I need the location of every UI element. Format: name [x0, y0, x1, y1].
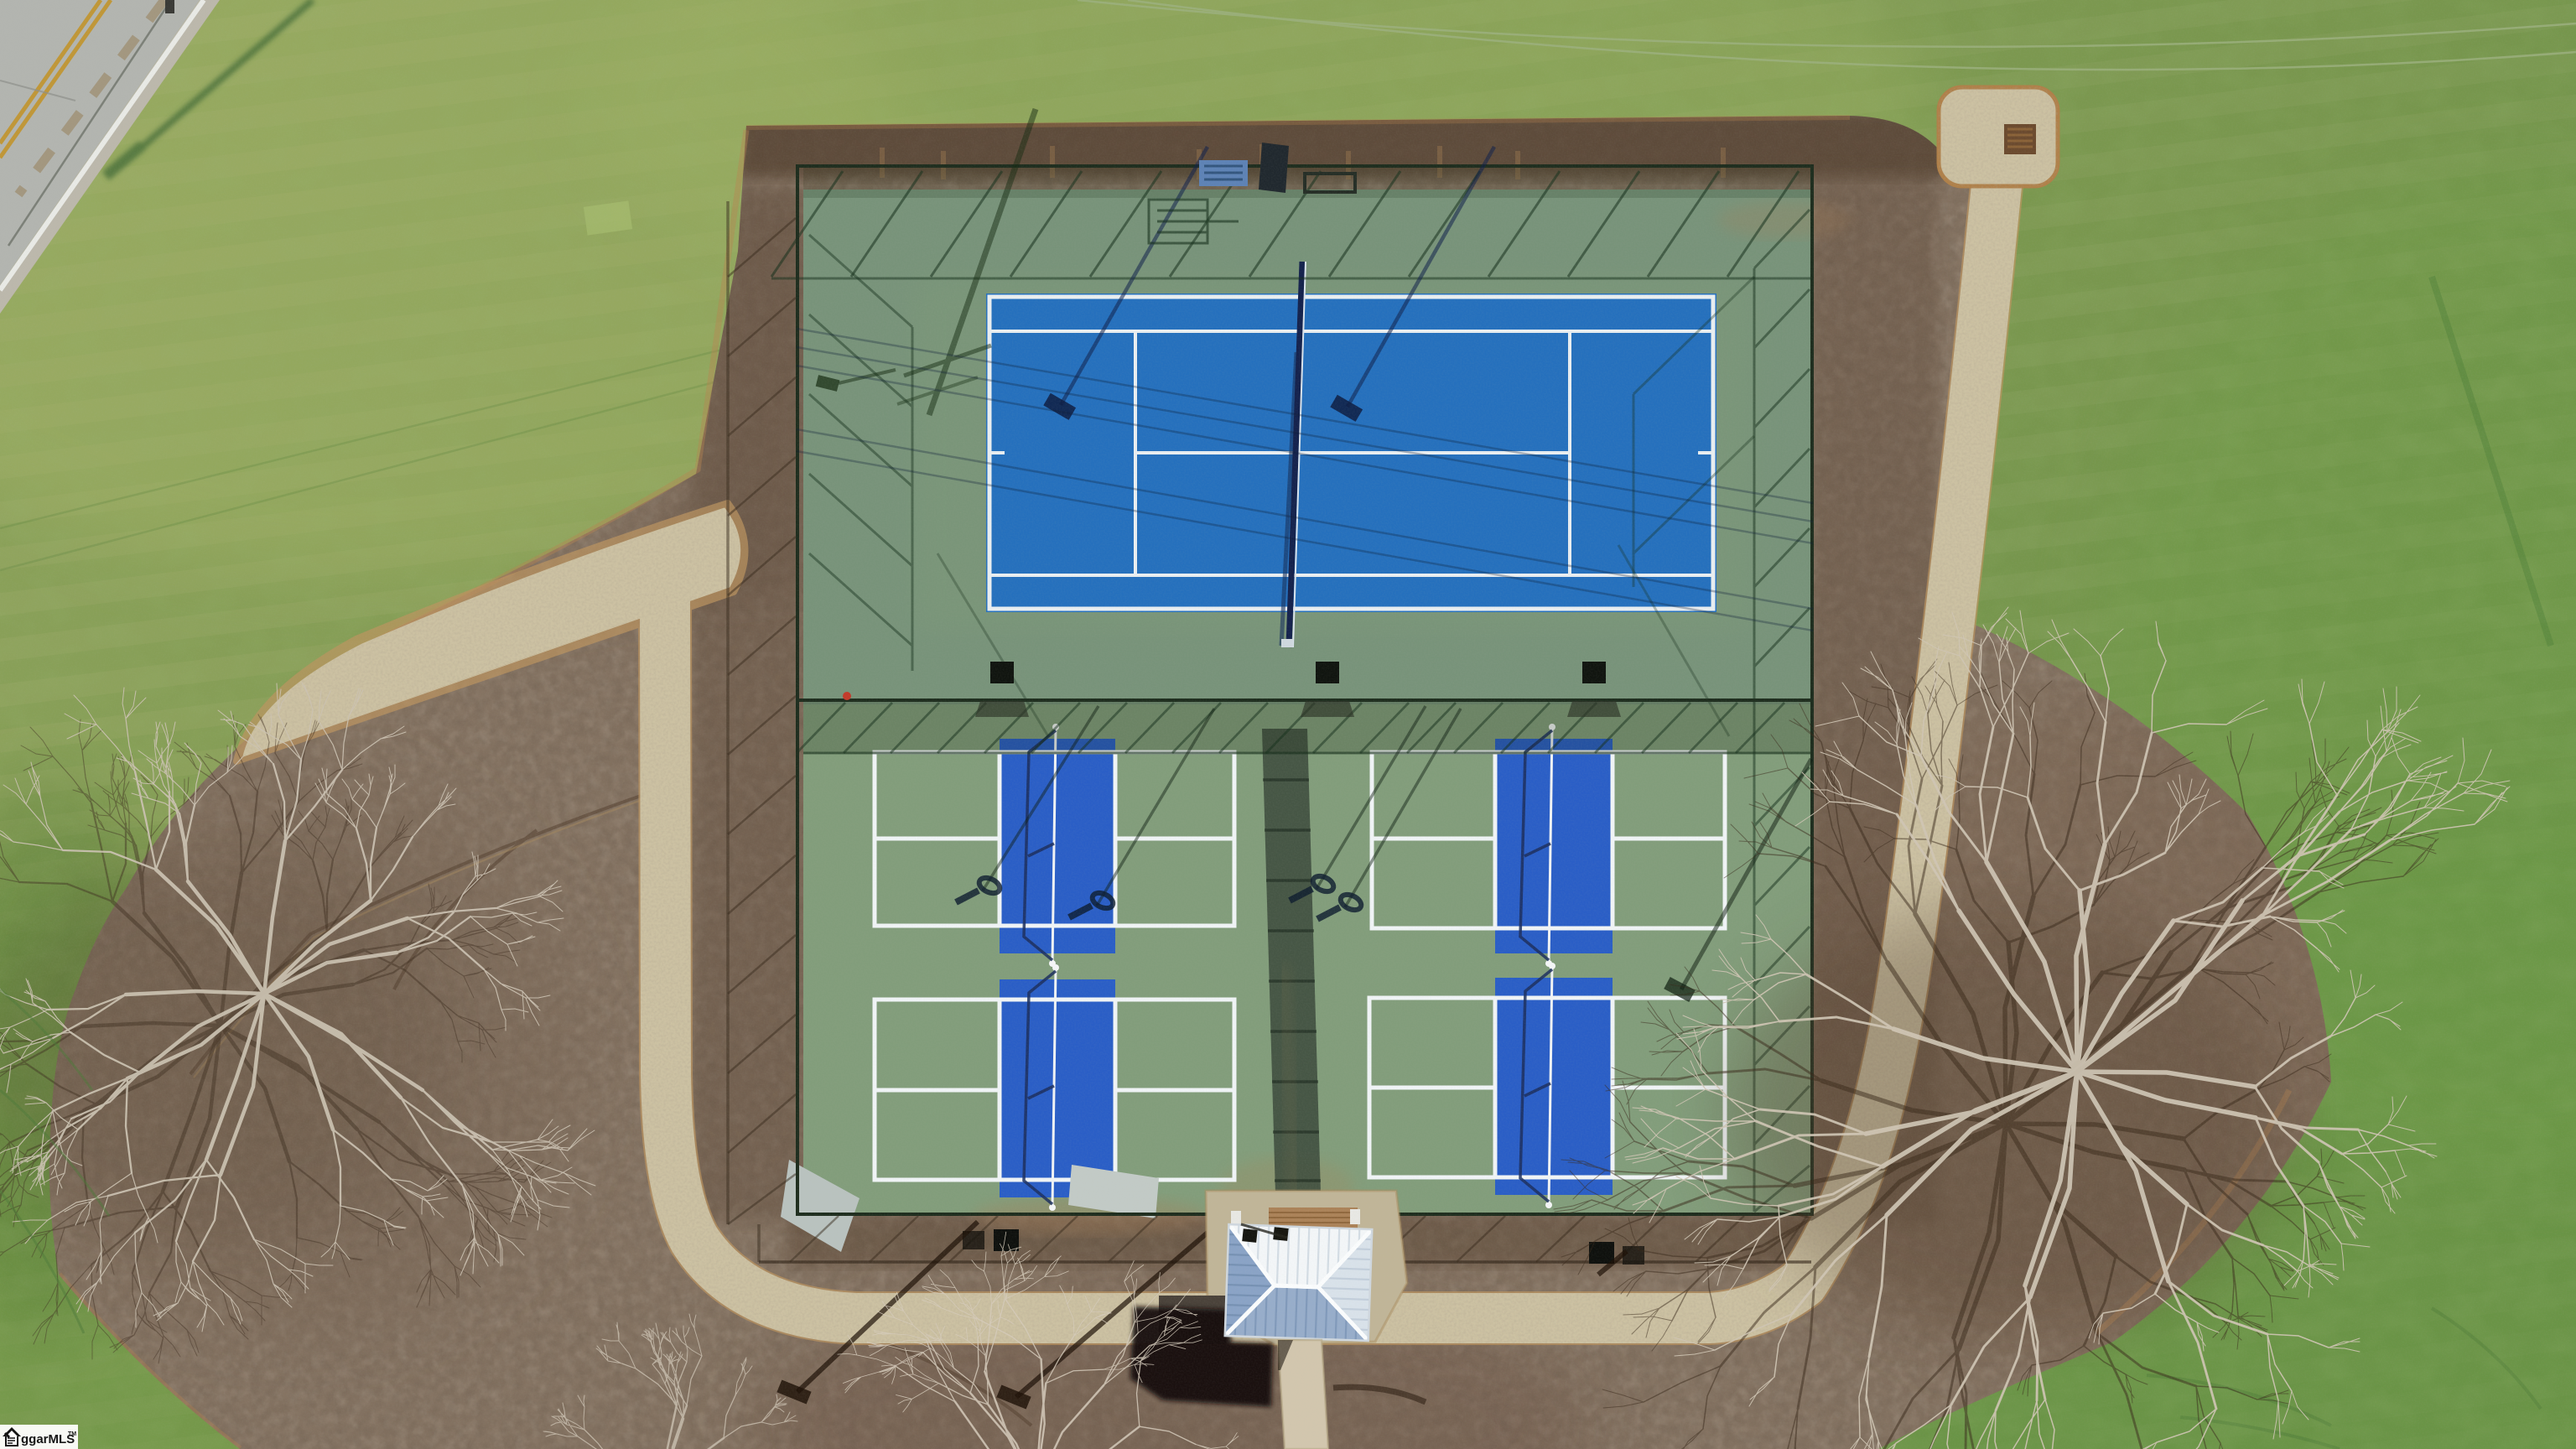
svg-text:TM: TM: [68, 1431, 76, 1437]
svg-text:ggarMLS: ggarMLS: [21, 1432, 75, 1446]
